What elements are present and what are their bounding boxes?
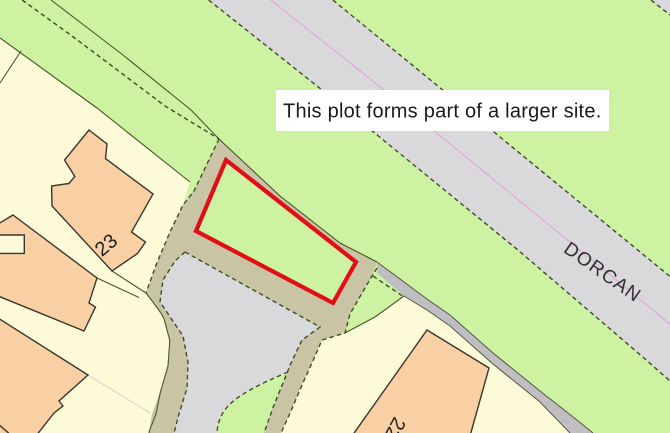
svg-text:This plot forms part of a larg: This plot forms part of a larger site. (283, 101, 602, 123)
